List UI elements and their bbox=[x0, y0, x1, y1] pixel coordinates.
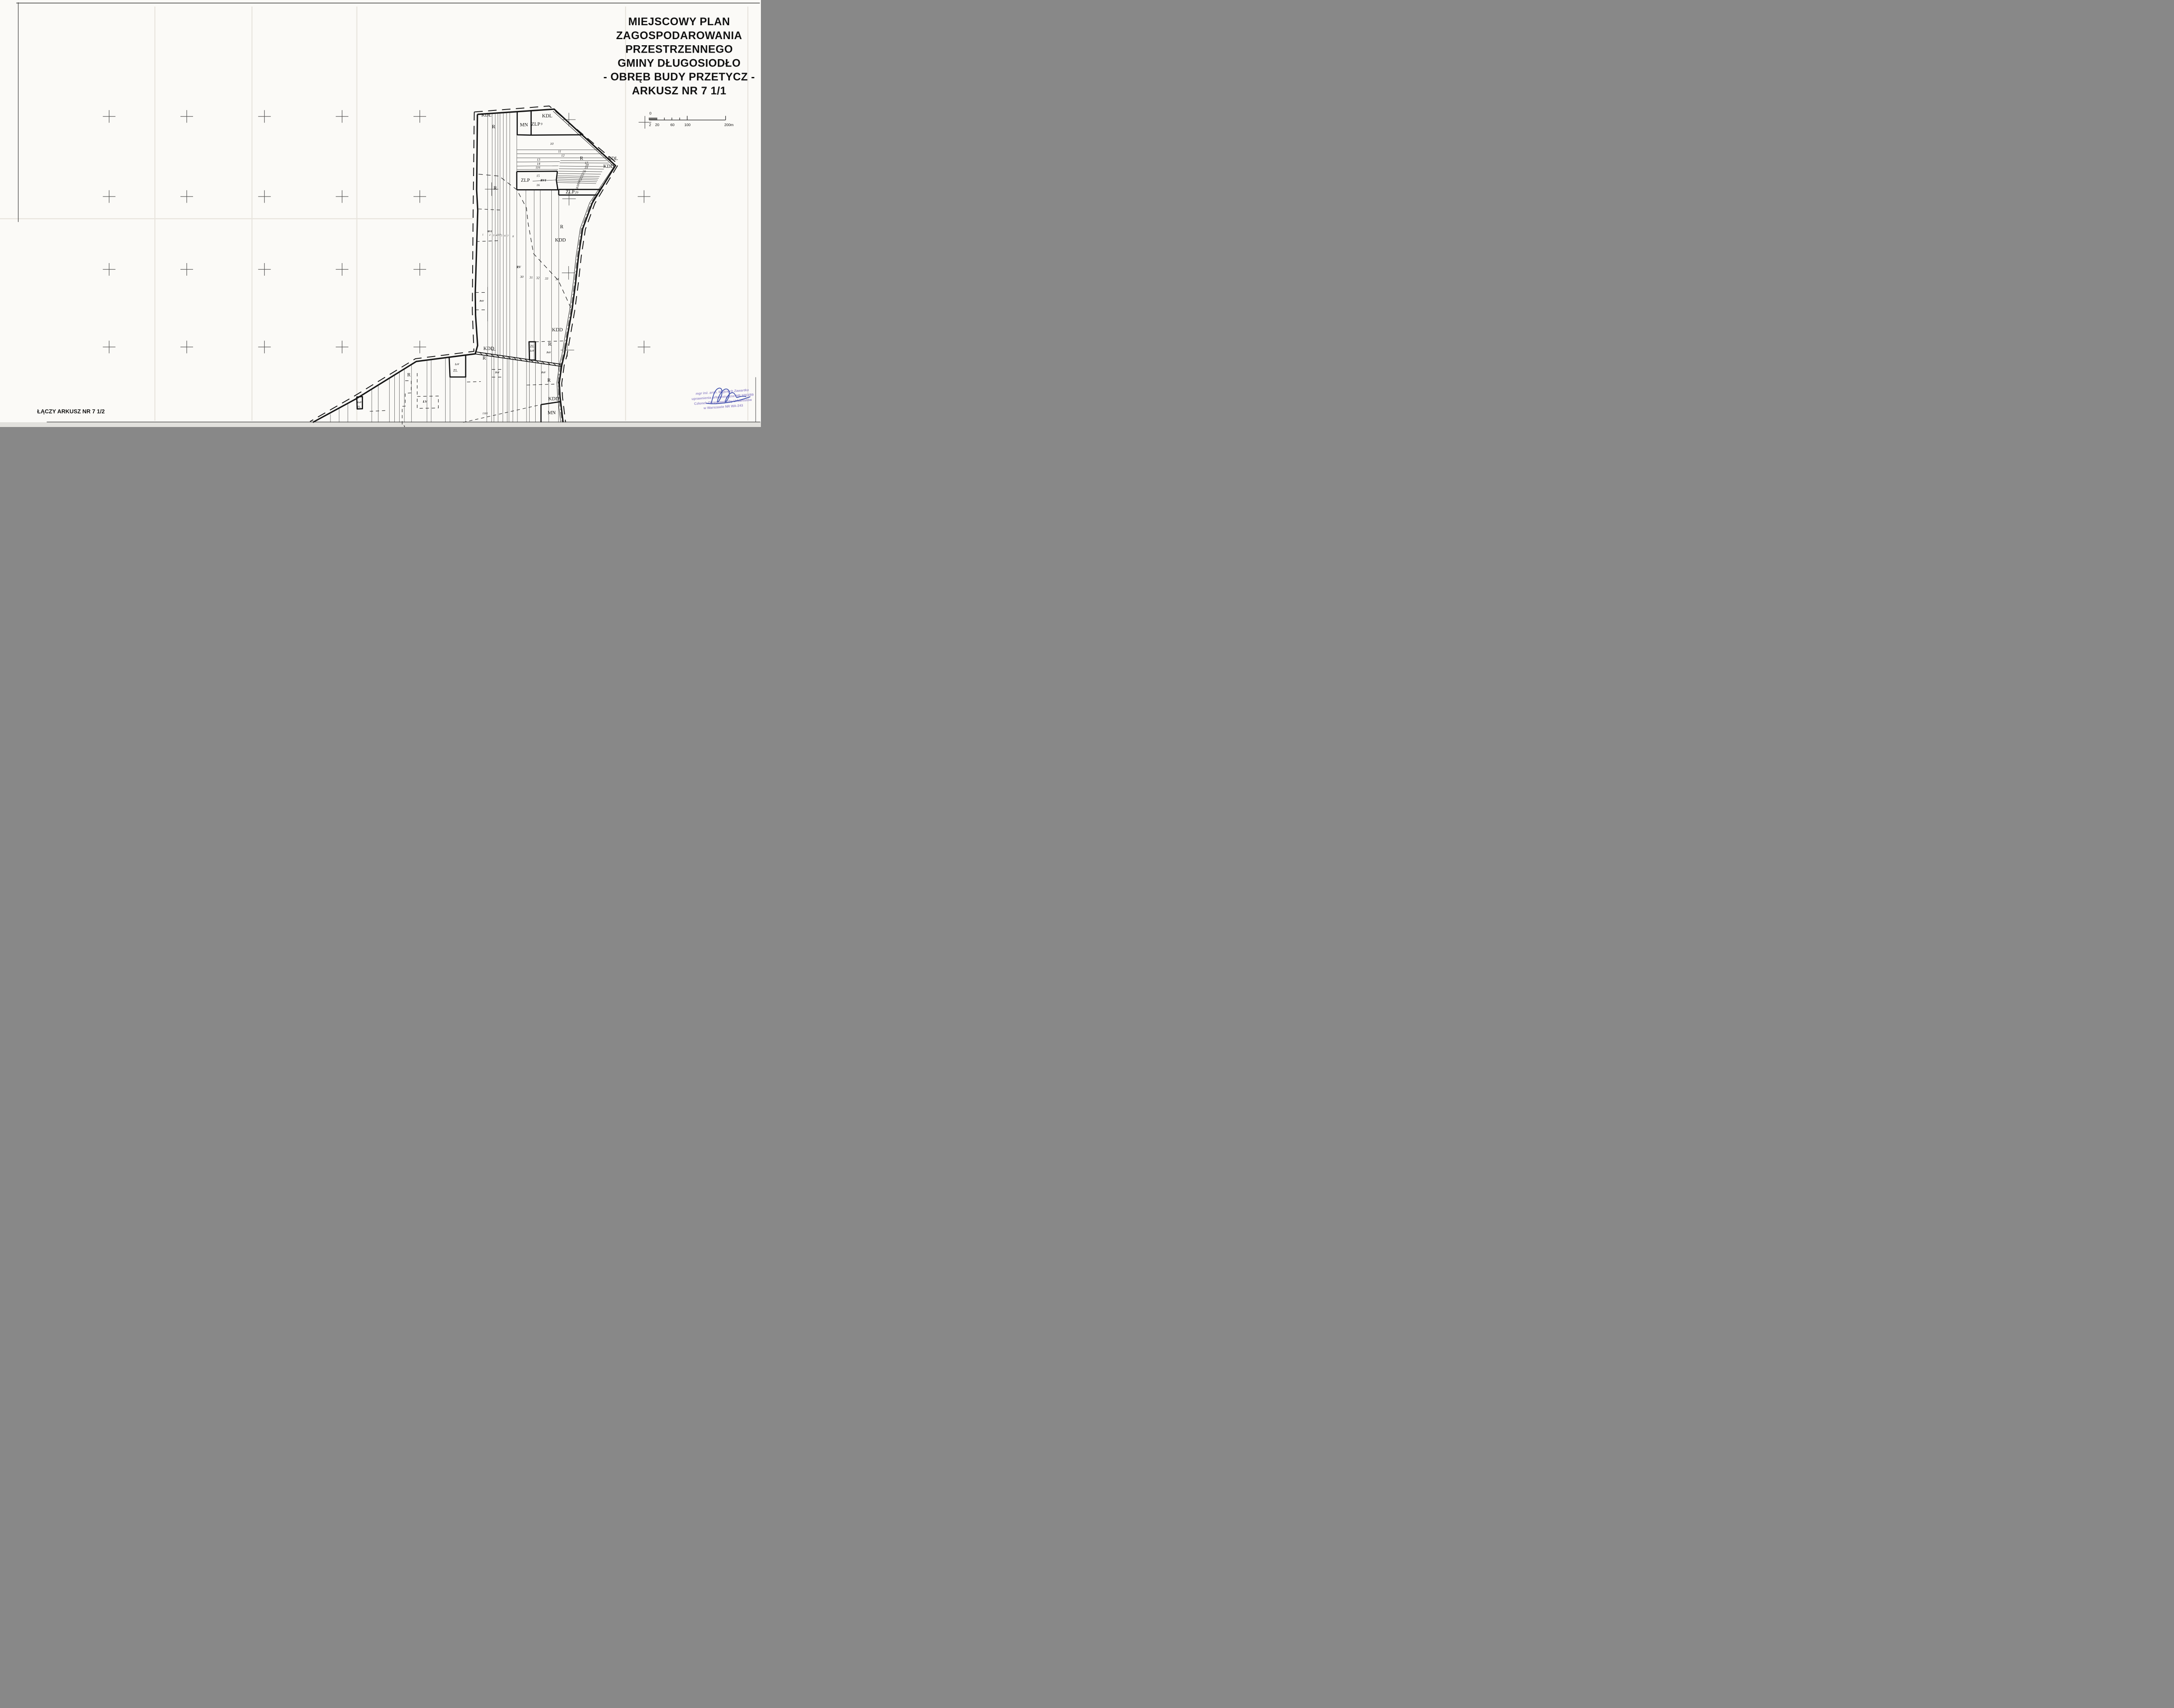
map-label-16: 16 bbox=[537, 183, 540, 187]
scale-bar-label-20: 20 bbox=[655, 123, 660, 127]
map-label-kdd: KDD bbox=[548, 397, 559, 402]
map-label-kdd: KDD bbox=[552, 327, 563, 333]
map-label-psv: PsV bbox=[495, 372, 500, 374]
map-label-28: 28 bbox=[576, 187, 578, 190]
map-label-r: R bbox=[580, 156, 584, 161]
map-label-psv: PsV bbox=[480, 300, 484, 303]
map-label-r: R bbox=[492, 124, 495, 130]
map-label-rvi: RVI bbox=[540, 178, 547, 182]
map-label-r: R bbox=[547, 378, 551, 383]
registration-cross-grid bbox=[103, 110, 651, 353]
map-label-r: R bbox=[493, 186, 497, 191]
map-label-zlp: ZLP bbox=[521, 178, 530, 183]
map-label-zlp: ZLP bbox=[531, 122, 540, 127]
map-label-7: 7 bbox=[507, 235, 509, 238]
scale-bar-line bbox=[649, 116, 726, 120]
map-label-kdl: KDL bbox=[542, 113, 553, 119]
map-label-30: 30 bbox=[520, 275, 523, 279]
map-label-psv: PsV bbox=[541, 372, 546, 374]
map-label-1181: 118/1 bbox=[482, 413, 488, 415]
map-label-kdl: KDL bbox=[481, 113, 492, 118]
map-label-psv: PsV bbox=[547, 352, 551, 354]
map-canvas: KDLKDLKDLKDDMNZLP9R1011121314116R1718192… bbox=[0, 0, 761, 427]
map-label-lsv: LsV bbox=[530, 350, 535, 353]
map-label-19: 19 bbox=[584, 166, 588, 170]
map-label-29: 29 bbox=[575, 190, 578, 194]
map-label-117: 117 bbox=[497, 234, 501, 237]
title-line-1: MIEJSCOWY PLAN bbox=[628, 16, 730, 28]
title-line-4: GMINY DŁUGOSIODŁO bbox=[617, 57, 740, 69]
map-label-4: 4 bbox=[496, 234, 497, 237]
map-label-r: R bbox=[407, 373, 411, 378]
map-label-rv: RV bbox=[516, 265, 521, 269]
map-label-lsv: LsV bbox=[454, 363, 460, 366]
scale-bar-label-60: 60 bbox=[670, 123, 675, 127]
map-label-kdd: KDD bbox=[604, 164, 614, 169]
map-label-6: 6 bbox=[504, 235, 506, 237]
map-label-zl: ZL bbox=[530, 344, 534, 348]
plan-boundary-dashed bbox=[310, 106, 618, 423]
map-label-15: 15 bbox=[537, 174, 540, 178]
sheet-join-note: ŁĄCZY ARKUSZ NR 7 1/2 bbox=[37, 408, 105, 415]
scale-bar: 022060100200m bbox=[649, 111, 734, 127]
map-label-32: 32 bbox=[536, 276, 540, 280]
title-line-5: - OBRĘB BUDY PRZETYCZ - bbox=[604, 71, 755, 83]
map-label-116: 116 bbox=[535, 166, 540, 170]
map-label-r: R bbox=[548, 342, 552, 347]
map-label-mn: MN bbox=[520, 123, 528, 128]
map-label-zlp: ZLP bbox=[566, 190, 574, 195]
map-label-rvi: RVI bbox=[487, 230, 492, 233]
title-line-3: PRZESTRZENNEGO bbox=[625, 43, 733, 56]
join-note-text: ŁĄCZY ARKUSZ NR 7 1/2 bbox=[37, 408, 105, 415]
scale-bar-zero: 0 bbox=[650, 111, 652, 116]
map-label-10: 10 bbox=[550, 142, 554, 146]
map-label-11: 11 bbox=[558, 150, 561, 153]
map-label-1: 1 bbox=[482, 234, 483, 237]
scanner-bed-band bbox=[0, 422, 761, 427]
map-label-r: R bbox=[560, 224, 564, 230]
map-label-9: 9 bbox=[541, 122, 543, 126]
map-label-12: 12 bbox=[561, 153, 565, 157]
plan-boundary-solid bbox=[313, 109, 616, 422]
map-label-zl: ZL bbox=[453, 368, 457, 373]
map-label-33: 33 bbox=[544, 277, 548, 280]
map-label-13: 13 bbox=[537, 158, 540, 162]
map-label-31: 31 bbox=[529, 275, 533, 279]
map-label-v: ŁV bbox=[423, 400, 428, 404]
map-label-r: R bbox=[483, 356, 486, 361]
map-label-8: 8 bbox=[513, 235, 514, 238]
scale-bar-label-2: 2 bbox=[649, 123, 651, 127]
map-label-5: 5 bbox=[501, 235, 502, 237]
map-label-lsv: LsV bbox=[357, 401, 362, 404]
scale-bar-label-100: 100 bbox=[684, 123, 690, 127]
map-label-kdl: KDL bbox=[608, 156, 618, 161]
scale-bar-label-200m: 200m bbox=[724, 123, 734, 127]
title-line-2: ZAGOSPODAROWANIA bbox=[616, 30, 742, 42]
map-label-kdd: KDD bbox=[483, 346, 494, 351]
scanned-plan-sheet: KDLKDLKDLKDDMNZLP9R1011121314116R1718192… bbox=[0, 0, 761, 427]
map-label-kdd: KDD bbox=[555, 238, 566, 243]
map-label-34: 34 bbox=[555, 277, 559, 281]
map-label-mn: MN bbox=[547, 410, 556, 416]
east-road-centerline bbox=[558, 167, 615, 423]
map-label-2: 2 bbox=[489, 234, 490, 237]
title-block: MIEJSCOWY PLANZAGOSPODAROWANIAPRZESTRZEN… bbox=[604, 16, 755, 97]
urbanist-stamp: mgr inż. arch. Wojciech Zawartkouprawnie… bbox=[691, 388, 754, 411]
map-label-14: 14 bbox=[537, 162, 540, 166]
title-line-6: ARKUSZ NR 7 1/1 bbox=[632, 85, 726, 97]
dashed-subarea-lines bbox=[370, 209, 564, 427]
map-label-zl: ZL bbox=[357, 406, 361, 409]
map-label-3: 3 bbox=[493, 234, 494, 237]
registration-crosses bbox=[103, 110, 651, 357]
